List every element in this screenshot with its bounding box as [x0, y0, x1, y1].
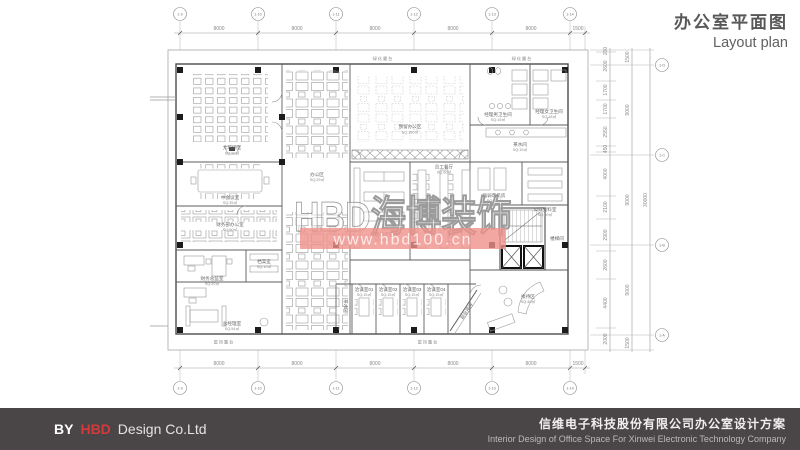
elevator-shafts — [502, 246, 543, 268]
dim-right-mid: 1500 — [625, 337, 631, 348]
footer-bar: BY HBD Design Co.Ltd 信维电子科技股份有限公司办公室设计方案… — [0, 408, 800, 450]
room-area: SQ:40㎡ — [521, 299, 536, 304]
footer-project-en: Interior Design of Office Space For Xinw… — [488, 434, 786, 444]
room-area: SQ:15㎡ — [429, 292, 444, 297]
dim-top-2: 8000 — [291, 26, 302, 32]
dim-right: 4000 — [603, 168, 609, 179]
room-label: 前台接待 — [459, 301, 475, 320]
room-label: 中会议室 — [221, 194, 240, 201]
dim-right: 2600 — [603, 259, 609, 270]
grid-bubble: 1-9 — [177, 387, 183, 391]
grid-bubble: 1-B — [659, 244, 665, 248]
dim-right: 2100 — [603, 201, 609, 212]
dim-right: 2900 — [603, 229, 609, 240]
watermark-url-text: www.hbd100.cn — [333, 232, 473, 249]
room-area: SQ:20㎡ — [205, 281, 220, 286]
grid-bubble: 1-13 — [488, 387, 496, 391]
room-area: SQ:50㎡ — [538, 212, 553, 217]
dim-right: 2550 — [603, 126, 609, 137]
room-area: SQ:90㎡ — [225, 151, 240, 156]
footer-brand-block: BY HBD Design Co.Ltd — [54, 421, 207, 437]
dim-top-3: 8000 — [369, 26, 380, 32]
room-label: 洽谈室01 — [355, 286, 374, 293]
dim-right: 1700 — [603, 103, 609, 114]
room-label: 预留办公区 — [399, 123, 422, 130]
grid-bubble: 1-14 — [566, 387, 574, 391]
grid-bubble: 1-11 — [332, 13, 339, 17]
room-label: 经理女卫生间 — [535, 108, 563, 115]
room-area: SQ:15㎡ — [357, 292, 372, 297]
room-label: 楼梯间 — [550, 235, 564, 242]
dim-top-5: 8000 — [525, 26, 536, 32]
dim-right-mid: 9000 — [625, 104, 631, 115]
room-label: 总经理室 — [223, 320, 242, 326]
room-area: SQ:10㎡ — [257, 264, 272, 269]
grid-bubble: 1-12 — [410, 387, 418, 391]
room-area: SQ:15㎡ — [381, 292, 396, 297]
room-label: 接待区 — [521, 293, 535, 300]
dim-top-4: 8000 — [447, 26, 458, 32]
grid-bubble: 1-A — [659, 334, 665, 338]
room-label: 档案室 — [257, 258, 271, 265]
room-label: 公共资料室 — [534, 206, 557, 213]
terrace-label: 绿化露台 — [512, 55, 533, 62]
footer-company: Design Co.Ltd — [118, 421, 207, 437]
room-label: 茶水间 — [513, 141, 527, 148]
grid-bubble: 1-9 — [177, 13, 183, 17]
room-area: SQ:50㎡ — [223, 227, 238, 232]
footer-project-block: 信维电子科技股份有限公司办公室设计方案 Interior Design of O… — [488, 415, 786, 444]
floor-plan-drawing: 8000 8000 8000 8000 8000 1500 8000 8000 … — [0, 0, 800, 408]
grid-bubble: 1-D — [659, 64, 665, 68]
terrace-label: 屋顶露台 — [418, 339, 439, 346]
dim-right: 450 — [603, 145, 609, 154]
room-area: SQ:50㎡ — [437, 170, 452, 175]
dim-right: 4400 — [603, 297, 609, 308]
grid-bubble: 1-10 — [254, 13, 262, 17]
footer-project-cn: 信维电子科技股份有限公司办公室设计方案 — [488, 415, 786, 432]
room-area: SQ:54㎡ — [225, 326, 240, 331]
dim-bottom-1: 8000 — [213, 361, 224, 367]
dim-right-mid: 1500 — [625, 51, 631, 62]
terrace-label: 屋顶露台 — [214, 339, 235, 346]
dim-right-mid: 9000 — [625, 284, 631, 295]
room-area: SQ:15㎡ — [491, 117, 506, 122]
room-label: 财务部办公室 — [216, 221, 244, 228]
dim-right: 2000 — [603, 333, 609, 344]
grid-bubble: 1-14 — [566, 13, 574, 17]
dim-right-mid: 9000 — [625, 194, 631, 205]
room-label: 经理男卫生间 — [484, 111, 512, 118]
dim-right: 1700 — [603, 84, 609, 95]
dim-bottom-3: 8000 — [369, 361, 380, 367]
dim-right: 2600 — [603, 60, 609, 71]
footer-brand: HBD — [80, 421, 110, 437]
dim-top-1: 8000 — [213, 26, 224, 32]
room-label: 员工餐厅 — [435, 164, 454, 171]
room-area: SQ:15㎡ — [513, 147, 528, 152]
dim-top-6: 1500 — [572, 26, 583, 32]
room-label: 洽谈室04 — [427, 286, 446, 293]
room-label: 茶水区 — [343, 299, 349, 313]
room-label: 洽谈室02 — [379, 286, 398, 293]
dim-bottom-4: 8000 — [447, 361, 458, 367]
grid-bubble: 1-C — [659, 154, 665, 158]
drawing-title-en: Layout plan — [674, 35, 788, 51]
room-label: 财务总监室 — [201, 275, 224, 282]
dim-right: 200 — [603, 47, 609, 56]
dim-bottom-6: 1500 — [572, 361, 583, 367]
room-label: 大培训室 — [223, 144, 242, 151]
terrace-label: 绿化露台 — [373, 55, 394, 62]
dim-right-total: 30000 — [643, 193, 649, 207]
dim-bottom-5: 8000 — [525, 361, 536, 367]
grid-bubble: 1-11 — [332, 387, 339, 391]
room-area: SQ:150㎡ — [402, 130, 419, 135]
footer-by: BY — [54, 421, 73, 437]
room-area: SQ:25㎡ — [310, 177, 325, 182]
grid-bubble: 1-13 — [488, 13, 496, 17]
watermark: HBD海博装饰 www.hbd100.cn — [294, 193, 512, 249]
drawing-title: 办公室平面图 Layout plan — [674, 8, 788, 51]
grid-bubble: 1-12 — [410, 13, 418, 17]
drawing-title-cn: 办公室平面图 — [674, 8, 788, 33]
room-label: 洽谈室03 — [403, 286, 422, 293]
room-label: 办公区 — [310, 171, 324, 178]
grid-bubble: 1-10 — [254, 387, 262, 391]
room-area: SQ:18㎡ — [542, 114, 557, 119]
room-area: SQ:35㎡ — [223, 200, 238, 205]
room-area: SQ:15㎡ — [405, 292, 420, 297]
dim-bottom-2: 8000 — [291, 361, 302, 367]
